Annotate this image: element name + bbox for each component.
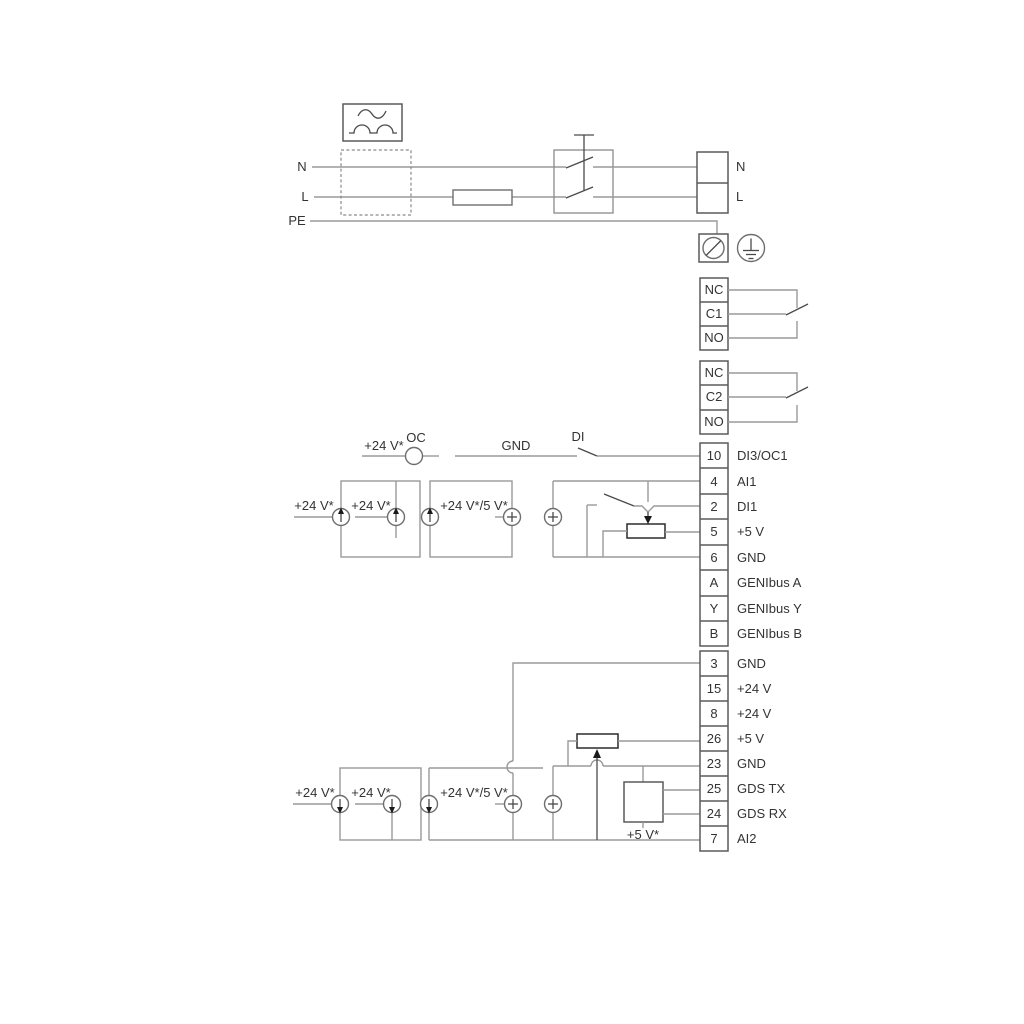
lower-circuit: +24 V* +24 V* +24 V*/5 V* +5 V* <box>293 663 700 842</box>
label-n-left: N <box>297 159 306 174</box>
label-24v-5v-b2: +24 V*/5 V* <box>440 785 508 800</box>
open-collector-icon <box>406 448 423 465</box>
label-genibus-y: GENIbus Y <box>737 601 802 616</box>
label-gds-rx: GDS RX <box>737 806 787 821</box>
relay1-section: NC C1 NO <box>700 278 808 350</box>
label-genibus-a: GENIbus A <box>737 575 802 590</box>
relay1-no-wire <box>728 321 797 338</box>
terminal-6: 6 <box>710 550 717 565</box>
gds-module-box <box>624 782 663 822</box>
label-di1: DI1 <box>737 499 757 514</box>
label-di3oc1: DI3/OC1 <box>737 448 788 463</box>
label-24v-8: +24 V <box>737 706 772 721</box>
terminal-3: 3 <box>710 656 717 671</box>
terminal-2: 2 <box>710 499 717 514</box>
label-n-right: N <box>736 159 745 174</box>
relay2-no-wire <box>728 405 797 422</box>
fuse-symbol <box>453 190 512 205</box>
label-l-right: L <box>736 189 743 204</box>
wiper-arrow-up <box>593 749 601 758</box>
terminal-26: 26 <box>707 731 721 746</box>
label-24v-a: +24 V* <box>294 498 333 513</box>
label-gnd: GND <box>737 550 766 565</box>
relay2-terminal-no: NO <box>704 414 724 429</box>
relay1-terminal-c1: C1 <box>706 306 723 321</box>
power-section: N L PE N L <box>288 104 764 262</box>
relay1-terminal-no: NO <box>704 330 724 345</box>
switch-blade-l <box>566 187 593 198</box>
label-24v-a2-inner: +24 V* <box>351 785 390 800</box>
relay1-nc-wire <box>728 290 797 308</box>
relay2-section: NC C2 NO <box>700 361 808 434</box>
label-5v: +5 V <box>737 524 764 539</box>
pe-wire <box>310 221 717 234</box>
terminal-B: B <box>710 626 719 641</box>
label-gnd-23: GND <box>737 756 766 771</box>
label-gnd-3: GND <box>737 656 766 671</box>
pot-lower-left-wire <box>568 741 577 766</box>
terminal-8: 8 <box>710 706 717 721</box>
terminal-strip-1: 10 4 2 5 6 A Y B DI3/OC1 AI1 DI1 +5 V GN… <box>700 443 802 646</box>
wiper-arrow-down <box>644 516 652 524</box>
pot-upper-left-wire <box>603 531 627 557</box>
terminal-25: 25 <box>707 781 721 796</box>
label-l-left: L <box>301 189 308 204</box>
terminal-A: A <box>710 575 719 590</box>
relay2-terminal-nc: NC <box>705 365 724 380</box>
label-24v-15: +24 V <box>737 681 772 696</box>
terminal-strip-2: 3 15 8 26 23 25 24 7 GND +24 V +24 V +5 … <box>700 651 787 851</box>
terminal-23: 23 <box>707 756 721 771</box>
relay2-nc-wire <box>728 373 797 391</box>
label-gnd-upper: GND <box>502 438 531 453</box>
label-di: DI <box>572 429 585 444</box>
label-24v-oc: +24 V* <box>364 438 403 453</box>
potentiometer-lower <box>577 734 618 748</box>
terminal-10: 10 <box>707 448 721 463</box>
label-24v-5v-b: +24 V*/5 V* <box>440 498 508 513</box>
terminal2-wire-with-hop <box>634 506 700 512</box>
label-24v-a2: +24 V* <box>295 785 334 800</box>
label-gds-tx: GDS TX <box>737 781 785 796</box>
label-5v-26: +5 V <box>737 731 764 746</box>
di3-switch-blade <box>578 448 597 456</box>
earth-ground-icon <box>738 235 765 262</box>
sensor-loop-b <box>430 481 512 557</box>
label-24v-a-inner: +24 V* <box>351 498 390 513</box>
switch-blade-n <box>566 157 593 168</box>
di1-switch-blade <box>604 494 634 506</box>
label-ai2: AI2 <box>737 831 757 846</box>
supply-unit-dashed-box <box>341 150 411 215</box>
upper-circuit: +24 V* OC GND DI +24 V* +24 V* +24 V*/5 … <box>294 429 700 557</box>
sensor-loop-a <box>341 481 420 557</box>
terminal-Y: Y <box>710 601 719 616</box>
terminal-24: 24 <box>707 806 721 821</box>
label-pe: PE <box>288 213 306 228</box>
label-5v-star: +5 V* <box>627 827 659 842</box>
terminal3-hop <box>507 761 513 773</box>
wiring-diagram-page: N L PE N L <box>0 0 1024 1024</box>
label-genibus-b: GENIbus B <box>737 626 802 641</box>
relay1-terminal-nc: NC <box>705 282 724 297</box>
potentiometer-upper <box>627 524 665 538</box>
wiring-diagram: N L PE N L <box>0 0 1024 1024</box>
ac-supply-symbol-box <box>343 104 402 141</box>
terminal-7: 7 <box>710 831 717 846</box>
terminal-15: 15 <box>707 681 721 696</box>
terminal-5: 5 <box>710 524 717 539</box>
relay2-terminal-c2: C2 <box>706 389 723 404</box>
terminal-4: 4 <box>710 474 717 489</box>
label-oc: OC <box>406 430 426 445</box>
label-ai1: AI1 <box>737 474 757 489</box>
